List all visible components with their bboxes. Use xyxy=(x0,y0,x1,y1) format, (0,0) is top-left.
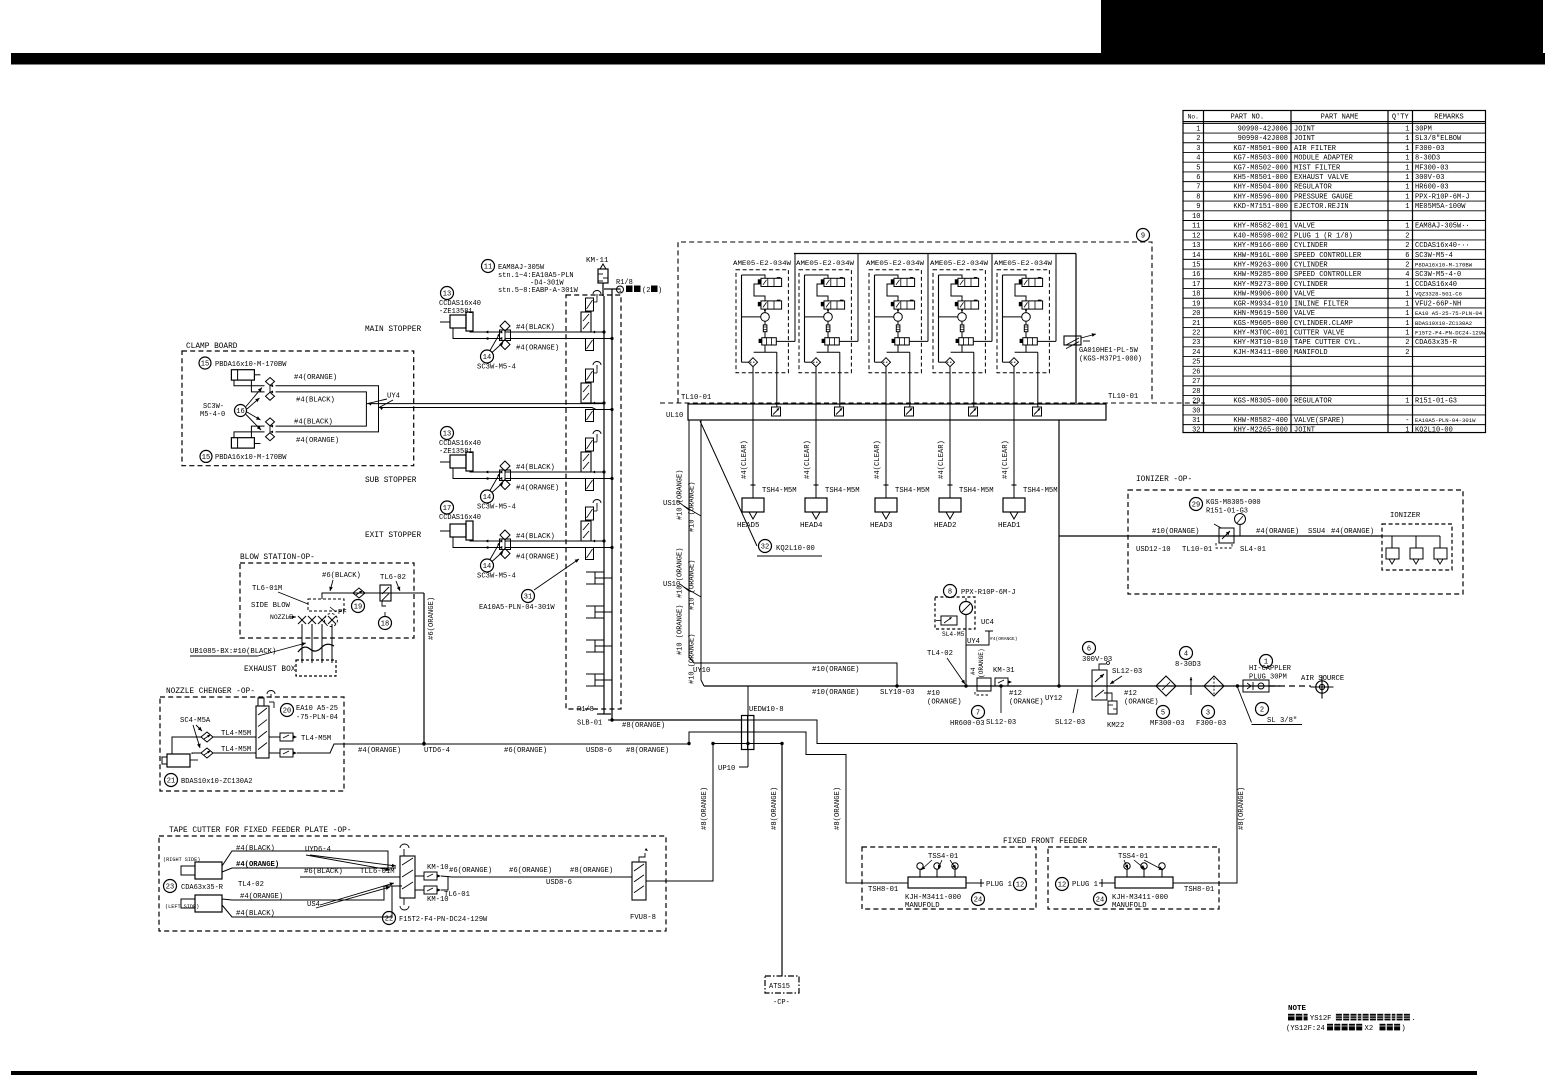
svg-text:CCDAS16x40: CCDAS16x40 xyxy=(1415,281,1457,289)
svg-text:EXHAUST BOX: EXHAUST BOX xyxy=(244,666,296,674)
svg-text:KHY-M9263-000: KHY-M9263-000 xyxy=(1233,261,1288,269)
svg-text:JOINT: JOINT xyxy=(1294,427,1315,435)
svg-text:#6(ORANGE): #6(ORANGE) xyxy=(449,867,492,875)
svg-text:VALVE: VALVE xyxy=(1294,291,1315,299)
svg-text:UY10: UY10 xyxy=(693,667,710,675)
svg-text:1: 1 xyxy=(1405,174,1409,182)
svg-text:11: 11 xyxy=(484,264,492,272)
svg-text:TL10-01: TL10-01 xyxy=(1182,546,1212,554)
svg-text:#4(CLEAR): #4(CLEAR) xyxy=(1002,440,1010,479)
svg-text:#8(ORANGE): #8(ORANGE) xyxy=(771,787,779,830)
svg-text:TSS4-01: TSS4-01 xyxy=(1118,853,1148,861)
svg-text:13: 13 xyxy=(443,291,451,299)
svg-text:15: 15 xyxy=(202,454,210,462)
svg-text:REMARKS: REMARKS xyxy=(1434,114,1463,122)
svg-text:(ORANGE): (ORANGE) xyxy=(927,699,962,707)
svg-text:CYLINDER: CYLINDER xyxy=(1294,281,1328,289)
svg-text:#12: #12 xyxy=(1124,690,1137,698)
svg-text:1: 1 xyxy=(1405,145,1409,153)
svg-text:29: 29 xyxy=(1192,502,1200,510)
svg-text:8: 8 xyxy=(1196,193,1200,201)
svg-text:29: 29 xyxy=(1192,398,1200,406)
svg-text:SC3W-M5-4: SC3W-M5-4 xyxy=(1415,252,1453,260)
svg-text:VALVE: VALVE xyxy=(1294,223,1315,231)
svg-text:PBDA16x10-M-170BW: PBDA16x10-M-170BW xyxy=(215,454,287,462)
svg-text:KQ2L10-00: KQ2L10-00 xyxy=(1415,427,1453,435)
svg-text:HI-CAPPLER: HI-CAPPLER xyxy=(1249,665,1292,673)
svg-text:21: 21 xyxy=(1192,320,1200,328)
svg-text:1: 1 xyxy=(1405,320,1409,328)
svg-text:8-30D3: 8-30D3 xyxy=(1175,661,1201,669)
svg-text:IONIZER -OP-: IONIZER -OP- xyxy=(1136,476,1192,484)
svg-text:KGR-M9934-010: KGR-M9934-010 xyxy=(1233,300,1288,308)
svg-text:F300-03: F300-03 xyxy=(1196,720,1226,728)
svg-text:#4(ORANGE): #4(ORANGE) xyxy=(516,554,559,562)
svg-text:USD12-10: USD12-10 xyxy=(1136,546,1171,554)
svg-text:EA10A5-PLN-04-301W: EA10A5-PLN-04-301W xyxy=(479,604,555,612)
svg-text:#4(BLACK): #4(BLACK) xyxy=(516,533,555,541)
svg-text:VQZ3328-5G1-C6: VQZ3328-5G1-C6 xyxy=(1415,291,1462,298)
svg-text:CLAMP BOARD: CLAMP BOARD xyxy=(186,343,238,351)
svg-text:HEAD4: HEAD4 xyxy=(800,522,823,530)
svg-text:SL12-03: SL12-03 xyxy=(1112,668,1142,676)
svg-text:7: 7 xyxy=(1196,184,1200,192)
svg-text:20: 20 xyxy=(283,708,291,716)
svg-text:#4(CLEAR): #4(CLEAR) xyxy=(938,440,946,479)
svg-text:PPX-R10P-6M-J: PPX-R10P-6M-J xyxy=(1415,193,1470,201)
svg-text:MANUFOLD: MANUFOLD xyxy=(1112,902,1147,910)
svg-text:#8(ORANGE): #8(ORANGE) xyxy=(626,747,669,755)
svg-text:SSU4: SSU4 xyxy=(1308,528,1325,536)
svg-text:24: 24 xyxy=(974,897,982,905)
svg-text:IONIZER: IONIZER xyxy=(1390,512,1421,520)
svg-text:#10 (ORANGE): #10 (ORANGE) xyxy=(689,634,697,684)
svg-text:MODULE ADAPTER: MODULE ADAPTER xyxy=(1294,155,1354,163)
svg-text:AIR FILTER: AIR FILTER xyxy=(1294,145,1337,153)
svg-text:1: 1 xyxy=(1405,164,1409,172)
svg-text:#4(BLACK): #4(BLACK) xyxy=(294,419,333,427)
svg-text:CYLINDER: CYLINDER xyxy=(1294,261,1328,269)
svg-text:PF: PF xyxy=(338,609,347,617)
svg-text:14: 14 xyxy=(483,563,491,571)
svg-text:AME05-E2-034W: AME05-E2-034W xyxy=(866,260,925,268)
svg-text:5: 5 xyxy=(1196,164,1200,172)
svg-text:KGS-M9605-000: KGS-M9605-000 xyxy=(1233,320,1288,328)
svg-text:TSH4-M5M: TSH4-M5M xyxy=(959,487,994,495)
svg-text:32: 32 xyxy=(1192,427,1200,435)
svg-text:CCDAS16x40: CCDAS16x40 xyxy=(439,514,481,522)
svg-text:AME05-E2-034W: AME05-E2-034W xyxy=(994,260,1053,268)
svg-text:KM22: KM22 xyxy=(1107,722,1124,730)
svg-text:PBDA16x10-M-170BW: PBDA16x10-M-170BW xyxy=(215,361,287,369)
svg-text:TSS4-01: TSS4-01 xyxy=(928,853,958,861)
svg-text:KHY-M9273-000: KHY-M9273-000 xyxy=(1233,281,1288,289)
svg-text:F15T2-F4-PN-DC24-129W: F15T2-F4-PN-DC24-129W xyxy=(1415,330,1486,337)
svg-text:#4(BLACK): #4(BLACK) xyxy=(296,397,335,405)
svg-text:1: 1 xyxy=(1405,203,1409,211)
svg-text:TL6-01M: TL6-01M xyxy=(252,585,282,593)
svg-text:SL3/8″ELBOW: SL3/8″ELBOW xyxy=(1415,135,1462,143)
svg-text:KHW-M8582-400: KHW-M8582-400 xyxy=(1233,417,1288,425)
svg-text:KJH-M3411-000: KJH-M3411-000 xyxy=(905,894,961,902)
svg-text:4: 4 xyxy=(1184,651,1188,659)
svg-text:SIDE BLOW: SIDE BLOW xyxy=(251,602,291,610)
svg-text:K40-M8598-002: K40-M8598-002 xyxy=(1233,232,1288,240)
svg-text:KJH-M3411-000: KJH-M3411-000 xyxy=(1233,349,1288,357)
svg-text:19: 19 xyxy=(354,604,362,612)
svg-text:SL12-03: SL12-03 xyxy=(986,719,1016,727)
svg-text:VALVE(SPARE): VALVE(SPARE) xyxy=(1294,417,1344,425)
svg-text:(ORANGE): (ORANGE) xyxy=(1009,699,1044,707)
svg-text:(ORANGE): (ORANGE) xyxy=(1124,699,1159,707)
svg-text:300V-03: 300V-03 xyxy=(1415,174,1444,182)
svg-text:KM-31: KM-31 xyxy=(993,667,1015,675)
svg-text:UY4: UY4 xyxy=(967,638,980,646)
svg-text:AIR SOURCE: AIR SOURCE xyxy=(1301,675,1344,683)
svg-text:MANIFOLD: MANIFOLD xyxy=(1294,349,1328,357)
svg-text:TL4-02: TL4-02 xyxy=(927,650,953,658)
svg-text:TSH4-M5M: TSH4-M5M xyxy=(895,487,930,495)
svg-text:#10: #10 xyxy=(927,690,940,698)
svg-text:28: 28 xyxy=(1192,388,1200,396)
svg-text:KHW-M9285-000: KHW-M9285-000 xyxy=(1233,271,1288,279)
svg-text:F300-03: F300-03 xyxy=(1415,145,1444,153)
svg-text:ME05M5A-100W: ME05M5A-100W xyxy=(1415,203,1466,211)
svg-text:INLINE FILTER: INLINE FILTER xyxy=(1294,300,1349,308)
svg-text:EA10 A5-25-75-PLN-04: EA10 A5-25-75-PLN-04 xyxy=(1415,310,1483,317)
svg-text:1: 1 xyxy=(1405,135,1409,143)
svg-text:FIXED FRONT FEEDER: FIXED FRONT FEEDER xyxy=(1003,838,1088,846)
svg-text:#6(ORANGE): #6(ORANGE) xyxy=(504,747,547,755)
svg-text:15: 15 xyxy=(201,361,209,369)
svg-text:32: 32 xyxy=(761,544,769,552)
svg-text:-CP-: -CP- xyxy=(773,999,790,1007)
svg-text:7: 7 xyxy=(976,710,980,718)
svg-text:PART NAME: PART NAME xyxy=(1321,114,1359,122)
svg-text:6: 6 xyxy=(1405,252,1409,260)
svg-text:(LEFT SIDE): (LEFT SIDE) xyxy=(165,904,199,910)
svg-text:TSH4-M5M: TSH4-M5M xyxy=(825,487,860,495)
svg-text:18: 18 xyxy=(381,621,389,629)
svg-text:HR600-03: HR600-03 xyxy=(950,720,985,728)
svg-text:YS12F: YS12F xyxy=(1310,1015,1332,1023)
svg-text:#12: #12 xyxy=(1009,690,1022,698)
svg-text:1: 1 xyxy=(1405,310,1409,318)
svg-text:300V-03: 300V-03 xyxy=(1082,656,1112,664)
svg-text:KHW-M916L-000: KHW-M916L-000 xyxy=(1233,252,1288,260)
svg-text:SL12-03: SL12-03 xyxy=(1055,719,1085,727)
svg-text:KHY-M8596-000: KHY-M8596-000 xyxy=(1233,193,1288,201)
svg-text:NOZZLE: NOZZLE xyxy=(270,614,293,621)
svg-text:#10 (ORANGE): #10 (ORANGE) xyxy=(677,470,685,520)
svg-text:-75-PLN-04: -75-PLN-04 xyxy=(296,714,338,722)
svg-text:.: . xyxy=(1411,1015,1415,1023)
svg-text:#4(ORANGE): #4(ORANGE) xyxy=(516,345,559,353)
svg-text:NOZZLE CHENGER -OP-: NOZZLE CHENGER -OP- xyxy=(166,688,255,696)
svg-text:#4(ORANGE): #4(ORANGE) xyxy=(296,437,339,445)
svg-text:1: 1 xyxy=(1405,155,1409,163)
svg-text:14: 14 xyxy=(483,494,491,502)
svg-text:FVU8-8: FVU8-8 xyxy=(630,914,656,922)
svg-text:REGULATOR: REGULATOR xyxy=(1294,398,1333,406)
svg-text:TSH8-01: TSH8-01 xyxy=(1184,886,1214,894)
svg-text:TL6-01: TL6-01 xyxy=(444,891,470,899)
svg-text:KQ2L10-00: KQ2L10-00 xyxy=(776,545,815,553)
svg-text:SUB STOPPER: SUB STOPPER xyxy=(365,477,417,485)
svg-text:KHY-M8582-001: KHY-M8582-001 xyxy=(1233,223,1288,231)
svg-text:AME05-E2-034W: AME05-E2-034W xyxy=(930,260,989,268)
svg-text:TSH4-M5M: TSH4-M5M xyxy=(762,487,797,495)
svg-text:BDAS10x10-ZC130A2: BDAS10x10-ZC130A2 xyxy=(181,778,252,786)
svg-text:CDA63x35-R: CDA63x35-R xyxy=(1415,339,1458,347)
svg-text:UP10: UP10 xyxy=(718,765,735,773)
svg-text:#6(ORANGE): #6(ORANGE) xyxy=(428,597,436,640)
svg-text:19: 19 xyxy=(1192,300,1200,308)
svg-text:USD8-6: USD8-6 xyxy=(586,747,612,755)
svg-text:17: 17 xyxy=(443,505,451,513)
svg-text:GA010HE1-PL-5W: GA010HE1-PL-5W xyxy=(1079,347,1139,355)
svg-text:(2: (2 xyxy=(642,287,650,295)
svg-text:16: 16 xyxy=(236,408,244,416)
svg-text:#4(ORANGE): #4(ORANGE) xyxy=(1256,528,1299,536)
svg-text:SC3W-M5-4: SC3W-M5-4 xyxy=(477,573,516,581)
svg-text:(KGS-M37P1-000): (KGS-M37P1-000) xyxy=(1079,356,1142,364)
svg-text:13: 13 xyxy=(443,431,451,439)
svg-text:#8(ORANGE): #8(ORANGE) xyxy=(701,787,709,830)
svg-text:3: 3 xyxy=(1196,145,1200,153)
svg-text:#10 (ORANGE): #10 (ORANGE) xyxy=(677,605,685,655)
svg-text:TAPE CUTTER CYL.: TAPE CUTTER CYL. xyxy=(1294,339,1361,347)
svg-text:30PM: 30PM xyxy=(1415,125,1432,133)
svg-text:BLOW STATION-OP-: BLOW STATION-OP- xyxy=(240,554,315,562)
svg-text:UY4: UY4 xyxy=(387,393,400,401)
svg-text:KHY-M2265-000: KHY-M2265-000 xyxy=(1233,427,1288,435)
svg-text:12: 12 xyxy=(1058,882,1066,890)
svg-text:JOINT: JOINT xyxy=(1294,135,1315,143)
svg-text:VALVE: VALVE xyxy=(1294,310,1315,318)
svg-text:16: 16 xyxy=(1192,271,1200,279)
svg-text:UTD6-4: UTD6-4 xyxy=(424,747,450,755)
svg-text:CUTTER VALVE: CUTTER VALVE xyxy=(1294,330,1344,338)
svg-text:ATS15: ATS15 xyxy=(769,983,790,991)
svg-text:KGS-M8305-000: KGS-M8305-000 xyxy=(1206,499,1261,507)
svg-text:#10 (ORANGE): #10 (ORANGE) xyxy=(677,548,685,598)
svg-text:KG7-M8502-000: KG7-M8502-000 xyxy=(1233,164,1288,172)
svg-text:KG7-M8501-000: KG7-M8501-000 xyxy=(1233,145,1288,153)
svg-text:TL4-M5M: TL4-M5M xyxy=(301,735,331,743)
svg-text:#4(BLACK): #4(BLACK) xyxy=(236,910,275,918)
svg-text:#4(ORANGE): #4(ORANGE) xyxy=(236,861,279,869)
svg-text:KH5-M8501-000: KH5-M8501-000 xyxy=(1233,174,1288,182)
svg-text:#4(ORANGE): #4(ORANGE) xyxy=(294,374,337,382)
svg-text:KHY-M3T10-010: KHY-M3T10-010 xyxy=(1233,339,1288,347)
svg-text:MANUFOLD: MANUFOLD xyxy=(905,902,940,910)
svg-text:SC3W-M5-4: SC3W-M5-4 xyxy=(477,504,516,512)
svg-text:27: 27 xyxy=(1192,378,1200,386)
svg-text:VFU2-66P-NH: VFU2-66P-NH xyxy=(1415,300,1461,308)
svg-text:UEDW10-8: UEDW10-8 xyxy=(749,706,784,714)
svg-text:2: 2 xyxy=(1405,349,1409,357)
svg-text:8-30D3: 8-30D3 xyxy=(1415,155,1440,163)
svg-text:MF300-03: MF300-03 xyxy=(1415,164,1449,172)
svg-text:KG7-M8503-000: KG7-M8503-000 xyxy=(1233,155,1288,163)
svg-text:6: 6 xyxy=(1196,174,1200,182)
svg-text:HEAD3: HEAD3 xyxy=(870,522,893,530)
svg-text:#6(BLACK): #6(BLACK) xyxy=(322,572,361,580)
svg-text:HEAD5: HEAD5 xyxy=(737,522,760,530)
svg-text:SPEED CONTROLLER: SPEED CONTROLLER xyxy=(1294,271,1362,279)
svg-text:MF300-03: MF300-03 xyxy=(1150,720,1185,728)
svg-text:#4(BLACK): #4(BLACK) xyxy=(516,324,555,332)
svg-text:1: 1 xyxy=(1405,291,1409,299)
svg-text:21: 21 xyxy=(167,778,175,786)
svg-text:#4(ORANGE): #4(ORANGE) xyxy=(240,893,283,901)
svg-text:KM-11: KM-11 xyxy=(586,257,609,265)
svg-text:MIST FILTER: MIST FILTER xyxy=(1294,164,1341,172)
svg-text:P8DA16x10-M-170BW: P8DA16x10-M-170BW xyxy=(1415,261,1473,268)
svg-text:SC4-M5A: SC4-M5A xyxy=(180,717,211,725)
svg-text:KHY-M9166-000: KHY-M9166-000 xyxy=(1233,242,1288,250)
svg-text:stn.5~8:EABP-A-301W: stn.5~8:EABP-A-301W xyxy=(498,287,579,295)
svg-text:X2: X2 xyxy=(1365,1025,1374,1033)
svg-text:14: 14 xyxy=(1192,252,1200,260)
svg-text:90990-42J006: 90990-42J006 xyxy=(1238,125,1288,133)
svg-text:KHY-M8504-000: KHY-M8504-000 xyxy=(1233,184,1288,192)
svg-text:5: 5 xyxy=(1161,710,1165,718)
svg-text:31: 31 xyxy=(1192,417,1200,425)
svg-text:12: 12 xyxy=(1192,232,1200,240)
svg-text:#4(ORANGE): #4(ORANGE) xyxy=(358,747,401,755)
svg-text:22: 22 xyxy=(1192,330,1200,338)
svg-text:JOINT: JOINT xyxy=(1294,125,1315,133)
svg-text:SC3W-M5-4-0: SC3W-M5-4-0 xyxy=(1415,271,1461,279)
svg-text:KKD-M7151-000: KKD-M7151-000 xyxy=(1233,203,1288,211)
svg-text:EA10A5-PLN-04-301W: EA10A5-PLN-04-301W xyxy=(1415,417,1476,424)
svg-text:1: 1 xyxy=(1405,330,1409,338)
svg-text:): ) xyxy=(658,287,662,295)
svg-text:3: 3 xyxy=(1206,710,1210,718)
svg-text:KHY-M3T0C-001: KHY-M3T0C-001 xyxy=(1233,330,1288,338)
svg-text:14: 14 xyxy=(483,354,491,362)
svg-text:HEAD1: HEAD1 xyxy=(998,522,1021,530)
svg-text:(YS12F:24: (YS12F:24 xyxy=(1286,1025,1325,1033)
svg-text:1: 1 xyxy=(1196,125,1200,133)
svg-text:): ) xyxy=(1401,1025,1405,1033)
svg-text:EA10 A5-25: EA10 A5-25 xyxy=(296,705,338,713)
svg-text:1: 1 xyxy=(1405,281,1409,289)
svg-text:SC3W-M5-4: SC3W-M5-4 xyxy=(477,364,516,372)
svg-text:SLY10-03: SLY10-03 xyxy=(880,689,915,697)
svg-text:PLUG 1: PLUG 1 xyxy=(986,881,1012,889)
svg-text:CDA63x35-R: CDA63x35-R xyxy=(181,884,224,892)
svg-text:22: 22 xyxy=(385,916,393,924)
svg-text:24: 24 xyxy=(1096,897,1104,905)
svg-text:UC4: UC4 xyxy=(981,619,994,627)
svg-text:TL10-01: TL10-01 xyxy=(681,394,711,402)
svg-text:F15T2-F4-PN-DC24-129W: F15T2-F4-PN-DC24-129W xyxy=(399,916,488,924)
svg-text:#8(ORANGE): #8(ORANGE) xyxy=(1238,787,1246,830)
svg-text:CYLINDER.CLAMP: CYLINDER.CLAMP xyxy=(1294,320,1353,328)
svg-text:1: 1 xyxy=(1405,125,1409,133)
svg-text:26: 26 xyxy=(1192,368,1200,376)
svg-text:MAIN STOPPER: MAIN STOPPER xyxy=(365,326,421,334)
svg-text:#4(CLEAR): #4(CLEAR) xyxy=(741,440,749,479)
svg-text:4: 4 xyxy=(1196,155,1200,163)
svg-text:1: 1 xyxy=(1405,398,1409,406)
svg-text:#10 (ORANGE): #10 (ORANGE) xyxy=(689,482,697,532)
svg-text:UYD6-4: UYD6-4 xyxy=(305,846,331,854)
svg-text:USD8-6: USD8-6 xyxy=(546,879,572,887)
svg-text:1: 1 xyxy=(1405,300,1409,308)
svg-text:1: 1 xyxy=(1405,427,1409,435)
svg-text:17: 17 xyxy=(1192,281,1200,289)
svg-text:23: 23 xyxy=(1192,339,1200,347)
svg-text:9: 9 xyxy=(1196,203,1200,211)
svg-text:#10(ORANGE): #10(ORANGE) xyxy=(812,689,859,697)
svg-text:KJH-M3411-000: KJH-M3411-000 xyxy=(1112,894,1168,902)
svg-text:AME05-E2-034W: AME05-E2-034W xyxy=(796,260,855,268)
svg-text:#4(BLACK): #4(BLACK) xyxy=(236,845,275,853)
svg-text:TL10-01: TL10-01 xyxy=(1108,393,1138,401)
svg-text:TSH4-M5M: TSH4-M5M xyxy=(1023,487,1058,495)
svg-text:R1/8: R1/8 xyxy=(577,706,594,714)
svg-text:M5-4-0: M5-4-0 xyxy=(200,411,225,419)
svg-text:#8(ORANGE): #8(ORANGE) xyxy=(834,787,842,830)
svg-text:#6(BLACK): #6(BLACK) xyxy=(304,868,343,876)
svg-text:#4: #4 xyxy=(970,667,977,675)
svg-text:2: 2 xyxy=(1260,707,1264,715)
svg-text:90990-42J008: 90990-42J008 xyxy=(1238,135,1288,143)
svg-text:SC3W-: SC3W- xyxy=(203,403,224,411)
svg-text:EJECTOR.REJIN: EJECTOR.REJIN xyxy=(1294,203,1349,211)
svg-text:TL4-M5M: TL4-M5M xyxy=(221,746,251,754)
svg-text:NOTE: NOTE xyxy=(1288,1005,1307,1013)
svg-text:10: 10 xyxy=(1192,213,1200,221)
svg-text:TL4-02: TL4-02 xyxy=(238,881,264,889)
svg-text:11: 11 xyxy=(1192,223,1200,231)
svg-text:#4(CLEAR): #4(CLEAR) xyxy=(804,440,812,479)
svg-text:SL4-M5: SL4-M5 xyxy=(942,631,965,638)
svg-text:PART NO.: PART NO. xyxy=(1230,114,1264,122)
svg-text:15: 15 xyxy=(1192,261,1200,269)
svg-text:EAM8AJ-305W: EAM8AJ-305W xyxy=(498,264,545,272)
svg-text:#10 (ORANGE): #10 (ORANGE) xyxy=(689,560,697,610)
svg-text:2: 2 xyxy=(1405,232,1409,240)
svg-text:BDAS10X10-ZC130A2: BDAS10X10-ZC130A2 xyxy=(1415,320,1472,327)
svg-text:UL10: UL10 xyxy=(666,412,683,420)
svg-text:PLUG 1: PLUG 1 xyxy=(1072,881,1098,889)
svg-text:2: 2 xyxy=(1405,339,1409,347)
svg-text:TL6-02: TL6-02 xyxy=(380,574,406,582)
svg-text:2: 2 xyxy=(1196,135,1200,143)
svg-text:#4(CLEAR): #4(CLEAR) xyxy=(874,440,882,479)
svg-text:EAM8AJ-305W··: EAM8AJ-305W·· xyxy=(1415,223,1470,231)
svg-text:KM-10: KM-10 xyxy=(427,864,449,872)
svg-text:KHW-M9906-000: KHW-M9906-000 xyxy=(1233,291,1288,299)
svg-text:No.: No. xyxy=(1188,114,1199,121)
svg-text:TAPE CUTTER FOR FIXED FEEDER P: TAPE CUTTER FOR FIXED FEEDER PLATE -OP- xyxy=(169,827,351,835)
svg-text:TSH8-01: TSH8-01 xyxy=(868,886,898,894)
svg-text:18: 18 xyxy=(1192,291,1200,299)
svg-text:AME05-E2-034W: AME05-E2-034W xyxy=(733,260,792,268)
svg-text:#8(ORANGE): #8(ORANGE) xyxy=(570,867,613,875)
svg-text:Q'TY: Q'TY xyxy=(1392,114,1410,122)
svg-text:-: - xyxy=(1405,417,1409,425)
svg-text:CCDAS16x40-··: CCDAS16x40-·· xyxy=(1415,242,1470,250)
svg-text:SL 3/8″: SL 3/8″ xyxy=(1267,717,1297,725)
svg-text:KHN-M9619-500: KHN-M9619-500 xyxy=(1233,310,1288,318)
svg-text:CYLINDER: CYLINDER xyxy=(1294,242,1328,250)
